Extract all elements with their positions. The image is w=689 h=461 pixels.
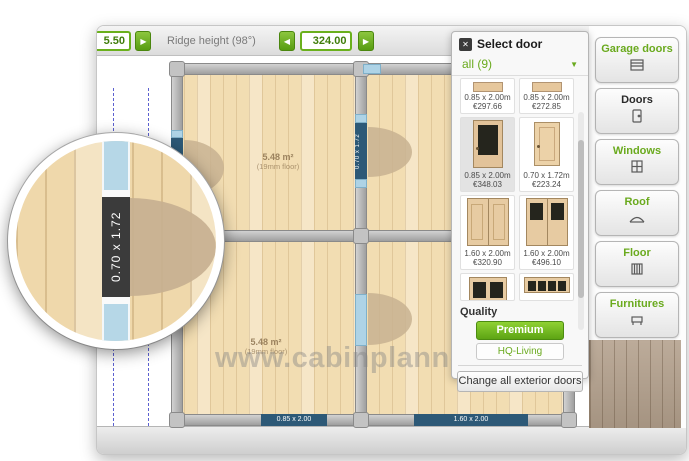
hq-living-button[interactable]: HQ-Living xyxy=(476,343,564,360)
change-all-exterior-doors-button[interactable]: Change all exterior doors xyxy=(457,371,583,392)
sidebar-label: Furnitures xyxy=(596,298,678,310)
glass-top-thumbnail xyxy=(469,277,507,300)
room-area: 5.48 m² xyxy=(218,152,338,162)
door-price: €348.03 xyxy=(461,180,514,189)
premium-button[interactable]: Premium xyxy=(476,321,564,340)
chevron-down-icon[interactable]: ▼ xyxy=(570,60,578,69)
page: 5.50 ▶ Ridge height (98°) ◀ 324.00 ▶ xyxy=(0,0,689,461)
close-icon[interactable]: ✕ xyxy=(459,38,472,51)
door-price: €272.85 xyxy=(520,102,573,111)
left-dimension-spinner: 5.50 ▶ xyxy=(96,31,151,51)
bottom-right-opening-label[interactable]: 1.60 x 2.00 xyxy=(414,414,528,426)
wall-joint xyxy=(169,61,185,77)
terrace-floor[interactable] xyxy=(589,340,681,428)
roof-icon xyxy=(596,211,678,230)
window-marker-top[interactable] xyxy=(363,64,381,74)
left-door-leaf-top xyxy=(171,130,183,138)
door-size: 0.85 x 2.00m xyxy=(520,93,573,102)
floor-icon xyxy=(596,262,678,281)
wall-joint xyxy=(561,412,577,428)
door-frame-cap xyxy=(102,190,130,197)
wall-joint xyxy=(353,412,369,428)
plain-door-thumbnail xyxy=(534,122,560,166)
lower-door-marker[interactable] xyxy=(355,294,367,346)
door-thumbnail xyxy=(473,82,503,92)
glass-door-thumbnail xyxy=(473,120,503,168)
room-floor-note: (19mm floor) xyxy=(218,162,338,171)
door-size: 1.60 x 2.00m xyxy=(461,249,514,258)
sidebar-label: Garage doors xyxy=(596,43,678,55)
garage-door-icon xyxy=(596,58,678,77)
ridge-value[interactable]: 324.00 xyxy=(300,31,352,51)
window-icon xyxy=(596,160,678,179)
select-door-panel: ✕ Select door all (9) ▼ 0.85 x 2.00m€297… xyxy=(451,31,589,379)
select-door-header: ✕ Select door xyxy=(452,32,588,54)
sidebar-label: Doors xyxy=(596,94,678,106)
door-icon xyxy=(596,109,678,128)
pane-top-thumbnail xyxy=(524,277,570,293)
door-size: 0.85 x 2.00m xyxy=(461,93,514,102)
door-item[interactable]: 1.60 x 2.00m€496.10 xyxy=(519,195,574,270)
door-price: €297.66 xyxy=(461,102,514,111)
ridge-height-spinner: ◀ 324.00 ▶ xyxy=(279,31,374,51)
sidebar-item-doors[interactable]: Doors xyxy=(595,88,679,134)
door-item[interactable] xyxy=(460,273,515,301)
ridge-decrease-icon[interactable]: ◀ xyxy=(279,31,295,51)
sidebar-item-garage-doors[interactable]: Garage doors xyxy=(595,37,679,83)
door-size: 1.60 x 2.00m xyxy=(520,249,573,258)
door-frame-cap xyxy=(102,297,130,304)
door-item-selected[interactable]: 0.85 x 2.00m€348.03 xyxy=(460,117,515,192)
door-filter-dropdown[interactable]: all (9) ▼ xyxy=(452,54,588,76)
door-thumbnail xyxy=(532,82,562,92)
ridge-increase-icon[interactable]: ▶ xyxy=(358,31,374,51)
ridge-height-label: Ridge height (98°) xyxy=(167,35,256,47)
door-price: €320.90 xyxy=(461,258,514,267)
door-leaf-bottom xyxy=(355,179,367,188)
bottom-left-opening-label[interactable]: 0.85 x 2.00 xyxy=(261,414,327,426)
door-size: 0.85 x 2.00m xyxy=(461,171,514,180)
door-filter-value[interactable]: all (9) xyxy=(462,57,492,71)
select-door-title: Select door xyxy=(477,37,542,51)
sidebar-label: Windows xyxy=(596,145,678,157)
statusbar xyxy=(97,426,687,455)
magnified-door-swing xyxy=(130,198,216,296)
door-list: 0.85 x 2.00m€297.66 0.85 x 2.00m€272.85 … xyxy=(452,76,588,302)
sidebar-label: Floor xyxy=(596,247,678,259)
quality-label: Quality xyxy=(452,302,588,319)
scrollbar-thumb[interactable] xyxy=(578,140,584,298)
sidebar-item-roof[interactable]: Roof xyxy=(595,190,679,236)
left-spinner-value[interactable]: 5.50 xyxy=(96,31,131,51)
sidebar-item-furnitures[interactable]: Furnitures xyxy=(595,292,679,338)
magnifier-overlay: 0.70 x 1.72 xyxy=(8,133,224,349)
double-door-thumbnail xyxy=(467,198,509,246)
sidebar-item-floor[interactable]: Floor xyxy=(595,241,679,287)
sidebar-item-windows[interactable]: Windows xyxy=(595,139,679,185)
wall-joint xyxy=(353,228,369,244)
double-glass-door-thumbnail xyxy=(526,198,568,246)
door-item[interactable]: 0.85 x 2.00m€272.85 xyxy=(519,78,574,114)
sidebar-label: Roof xyxy=(596,196,678,208)
furniture-icon xyxy=(596,313,678,332)
door-size: 0.70 x 1.72m xyxy=(520,171,573,180)
door-item[interactable]: 1.60 x 2.00m€320.90 xyxy=(460,195,515,270)
door-price: €223.24 xyxy=(520,180,573,189)
left-spinner-increase-icon[interactable]: ▶ xyxy=(135,31,151,51)
door-list-scrollbar[interactable] xyxy=(578,112,584,330)
wall-joint xyxy=(169,412,185,428)
inner-wall-door-label[interactable]: 0.70 x 1.72 xyxy=(355,123,367,179)
door-price: €496.10 xyxy=(520,258,573,267)
door-item[interactable]: 0.85 x 2.00m€297.66 xyxy=(460,78,515,114)
door-item[interactable] xyxy=(519,273,574,301)
room-label-upper: 5.48 m² (19mm floor) xyxy=(218,152,338,171)
door-item[interactable]: 0.70 x 1.72m€223.24 xyxy=(519,117,574,192)
door-leaf-top xyxy=(355,114,367,123)
panel-divider xyxy=(458,365,582,366)
magnified-door-label: 0.70 x 1.72 xyxy=(102,197,130,297)
